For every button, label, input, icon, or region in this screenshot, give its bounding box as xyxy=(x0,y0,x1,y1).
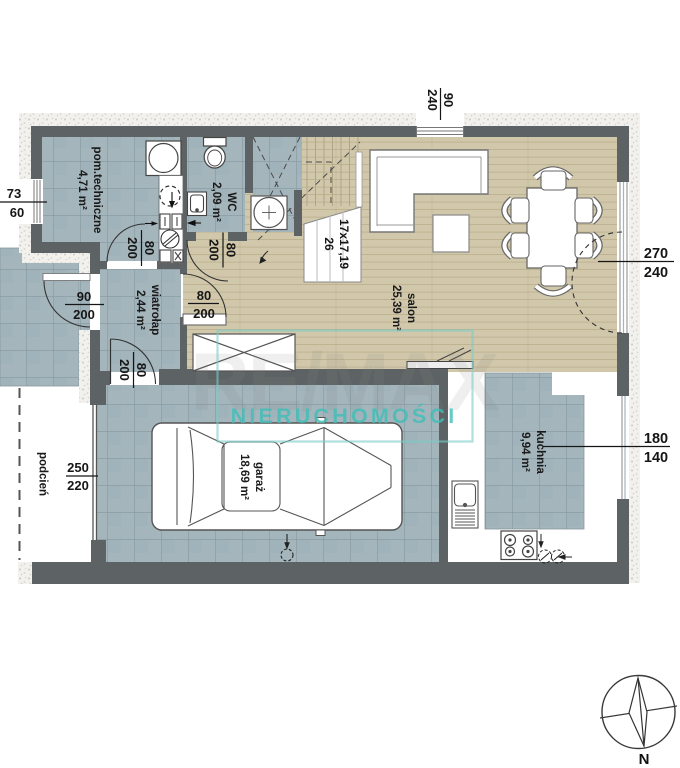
svg-text:17x17,19: 17x17,19 xyxy=(337,219,351,269)
svg-text:140: 140 xyxy=(644,450,668,466)
svg-text:WC: WC xyxy=(225,192,237,211)
svg-text:80: 80 xyxy=(142,241,157,255)
svg-text:60: 60 xyxy=(10,205,24,220)
svg-text:podcień: podcień xyxy=(37,452,49,496)
svg-text:NIERUCHOMOŚCI: NIERUCHOMOŚCI xyxy=(231,403,458,428)
svg-text:240: 240 xyxy=(644,265,668,281)
svg-text:270: 270 xyxy=(644,246,668,262)
svg-text:2,09 m²: 2,09 m² xyxy=(210,182,222,222)
svg-text:26: 26 xyxy=(322,237,336,251)
svg-text:220: 220 xyxy=(67,478,89,493)
svg-text:80: 80 xyxy=(224,243,239,257)
svg-text:250: 250 xyxy=(67,460,89,475)
svg-text:73: 73 xyxy=(7,186,21,201)
svg-text:80: 80 xyxy=(134,363,149,377)
svg-text:200: 200 xyxy=(73,307,95,322)
svg-text:garaż: garaż xyxy=(253,462,265,492)
svg-text:80: 80 xyxy=(197,288,211,303)
svg-text:25,39 m²: 25,39 m² xyxy=(390,285,402,331)
svg-text:240: 240 xyxy=(425,89,440,111)
svg-text:200: 200 xyxy=(193,306,215,321)
svg-text:2,44 m²: 2,44 m² xyxy=(134,290,146,330)
svg-text:wiatrołap: wiatrołap xyxy=(149,284,161,335)
svg-text:N: N xyxy=(639,751,650,768)
svg-text:salon: salon xyxy=(405,293,417,323)
svg-text:kuchnia: kuchnia xyxy=(534,430,546,474)
svg-text:pom.techniczne: pom.techniczne xyxy=(91,147,103,234)
svg-text:180: 180 xyxy=(644,431,668,447)
svg-text:4,71 m²: 4,71 m² xyxy=(76,170,88,210)
svg-text:200: 200 xyxy=(125,237,140,259)
svg-text:200: 200 xyxy=(207,239,222,261)
svg-text:90: 90 xyxy=(77,289,91,304)
svg-text:90: 90 xyxy=(441,93,456,107)
svg-text:200: 200 xyxy=(117,359,132,381)
svg-text:18,69 m²: 18,69 m² xyxy=(238,454,250,500)
svg-text:9,94 m²: 9,94 m² xyxy=(519,432,531,472)
